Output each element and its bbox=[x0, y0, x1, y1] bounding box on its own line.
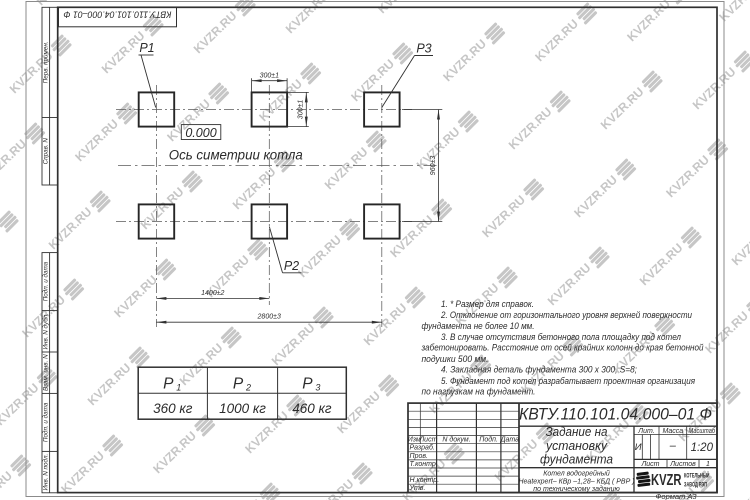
svg-text:подушки 500 мм.: подушки 500 мм. bbox=[422, 354, 489, 364]
svg-text:И: И bbox=[635, 442, 642, 453]
svg-text:Масштаб: Масштаб bbox=[689, 427, 716, 435]
svg-text:КОТЕЛЬНЫЙ: КОТЕЛЬНЫЙ bbox=[684, 472, 710, 480]
svg-text:0.000: 0.000 bbox=[185, 126, 216, 140]
svg-text:КВТУ.110.101.04.000–01 Ф: КВТУ.110.101.04.000–01 Ф bbox=[519, 406, 712, 424]
svg-text:1000 кг: 1000 кг bbox=[219, 401, 266, 416]
svg-text:Справ. N: Справ. N bbox=[42, 138, 49, 165]
svg-text:1: 1 bbox=[706, 461, 710, 468]
svg-text:460 кг: 460 кг bbox=[292, 401, 332, 416]
svg-text:1:20: 1:20 bbox=[691, 442, 714, 454]
svg-text:960±3: 960±3 bbox=[430, 156, 437, 176]
svg-text:фундамента: фундамента bbox=[540, 452, 613, 467]
svg-text:2800±3: 2800±3 bbox=[257, 314, 281, 321]
svg-text:Лист: Лист bbox=[640, 461, 659, 468]
svg-text:P1: P1 bbox=[139, 41, 154, 55]
svg-text:Задание на: Задание на bbox=[546, 424, 608, 439]
svg-text:300±1: 300±1 bbox=[298, 100, 305, 120]
svg-text:Пров.: Пров. bbox=[410, 453, 429, 460]
svg-text:1: 1 bbox=[176, 383, 181, 393]
svg-text:Н.контр.: Н.контр. bbox=[410, 477, 440, 484]
svg-text:5. Фундамент под котел разраб: 5. Фундамент под котел разрабатывает про… bbox=[441, 376, 695, 386]
svg-text:Р: Р bbox=[302, 376, 313, 393]
svg-text:Утв.: Утв. bbox=[409, 485, 426, 492]
svg-text:1400±2: 1400±2 bbox=[201, 290, 224, 297]
svg-text:Лист: Лист bbox=[418, 437, 437, 444]
svg-text:Разраб.: Разраб. bbox=[410, 444, 435, 452]
svg-text:1. * Размер для справок.: 1. * Размер для справок. bbox=[441, 299, 534, 309]
svg-text:P2: P2 bbox=[284, 259, 299, 273]
svg-text:N докум.: N докум. bbox=[442, 436, 470, 444]
svg-text:2. Отклонение от горизонтальн: 2. Отклонение от горизонтального уровня … bbox=[440, 310, 692, 320]
svg-text:Дата: Дата bbox=[500, 437, 520, 444]
svg-text:Heatexpert– КВр –1,28– КБД ( Р: Heatexpert– КВр –1,28– КБД ( РВР ) bbox=[518, 479, 634, 486]
svg-text:Лит.: Лит. bbox=[637, 428, 654, 435]
svg-text:Подп. и дата: Подп. и дата bbox=[41, 402, 49, 442]
svg-text:Т.контр.: Т.контр. bbox=[410, 461, 438, 468]
svg-text:Листов: Листов bbox=[669, 461, 696, 468]
svg-text:Подп.: Подп. bbox=[479, 436, 498, 444]
svg-text:2: 2 bbox=[245, 383, 251, 393]
svg-text:Ось симетрии котла: Ось симетрии котла bbox=[169, 146, 303, 162]
svg-text:Р3: Р3 bbox=[416, 42, 431, 56]
svg-text:Р: Р bbox=[233, 376, 244, 393]
svg-text:4. Закладная деталь фундамент: 4. Закладная деталь фундамента 300 х 300… bbox=[441, 365, 637, 375]
svg-text:Формат А3: Формат А3 bbox=[655, 492, 697, 500]
svg-text:–: – bbox=[669, 440, 677, 452]
svg-text:Инв. N подл.: Инв. N подл. bbox=[41, 454, 49, 491]
svg-text:360 кг: 360 кг bbox=[153, 401, 193, 416]
svg-text:3: 3 bbox=[315, 383, 320, 393]
svg-text:Инв. N дубл.: Инв. N дубл. bbox=[41, 313, 49, 349]
svg-text:по техническому заданию: по техническому заданию bbox=[533, 485, 620, 493]
svg-text:300±1: 300±1 bbox=[260, 73, 280, 80]
svg-text:Котел водогрейный: Котел водогрейный bbox=[543, 469, 610, 477]
svg-text:Масса: Масса bbox=[662, 428, 683, 435]
svg-text:Подп. и дата: Подп. и дата bbox=[41, 261, 49, 301]
svg-text:забетонировать. Расстояние от: забетонировать. Расстояние от осей крайн… bbox=[421, 343, 704, 353]
svg-text:3. В случае отсутствия бетонн: 3. В случае отсутствия бетонного пола пл… bbox=[441, 332, 681, 342]
svg-text:KVZR: KVZR bbox=[651, 472, 682, 489]
svg-text:фундамента не более 10 мм.: фундамента не более 10 мм. bbox=[422, 321, 535, 331]
svg-text:по нагрузкам на фундамент.: по нагрузкам на фундамент. bbox=[422, 387, 536, 397]
svg-text:Взам. инв. N: Взам. инв. N bbox=[42, 354, 49, 391]
svg-text:Р: Р bbox=[163, 376, 174, 393]
svg-text:КВТУ.110.101.04.000–01 Ф: КВТУ.110.101.04.000–01 Ф bbox=[64, 9, 172, 19]
svg-text:ЗАВОД РЭП: ЗАВОД РЭП bbox=[684, 482, 707, 488]
svg-text:Перв. примен.: Перв. примен. bbox=[42, 41, 49, 83]
